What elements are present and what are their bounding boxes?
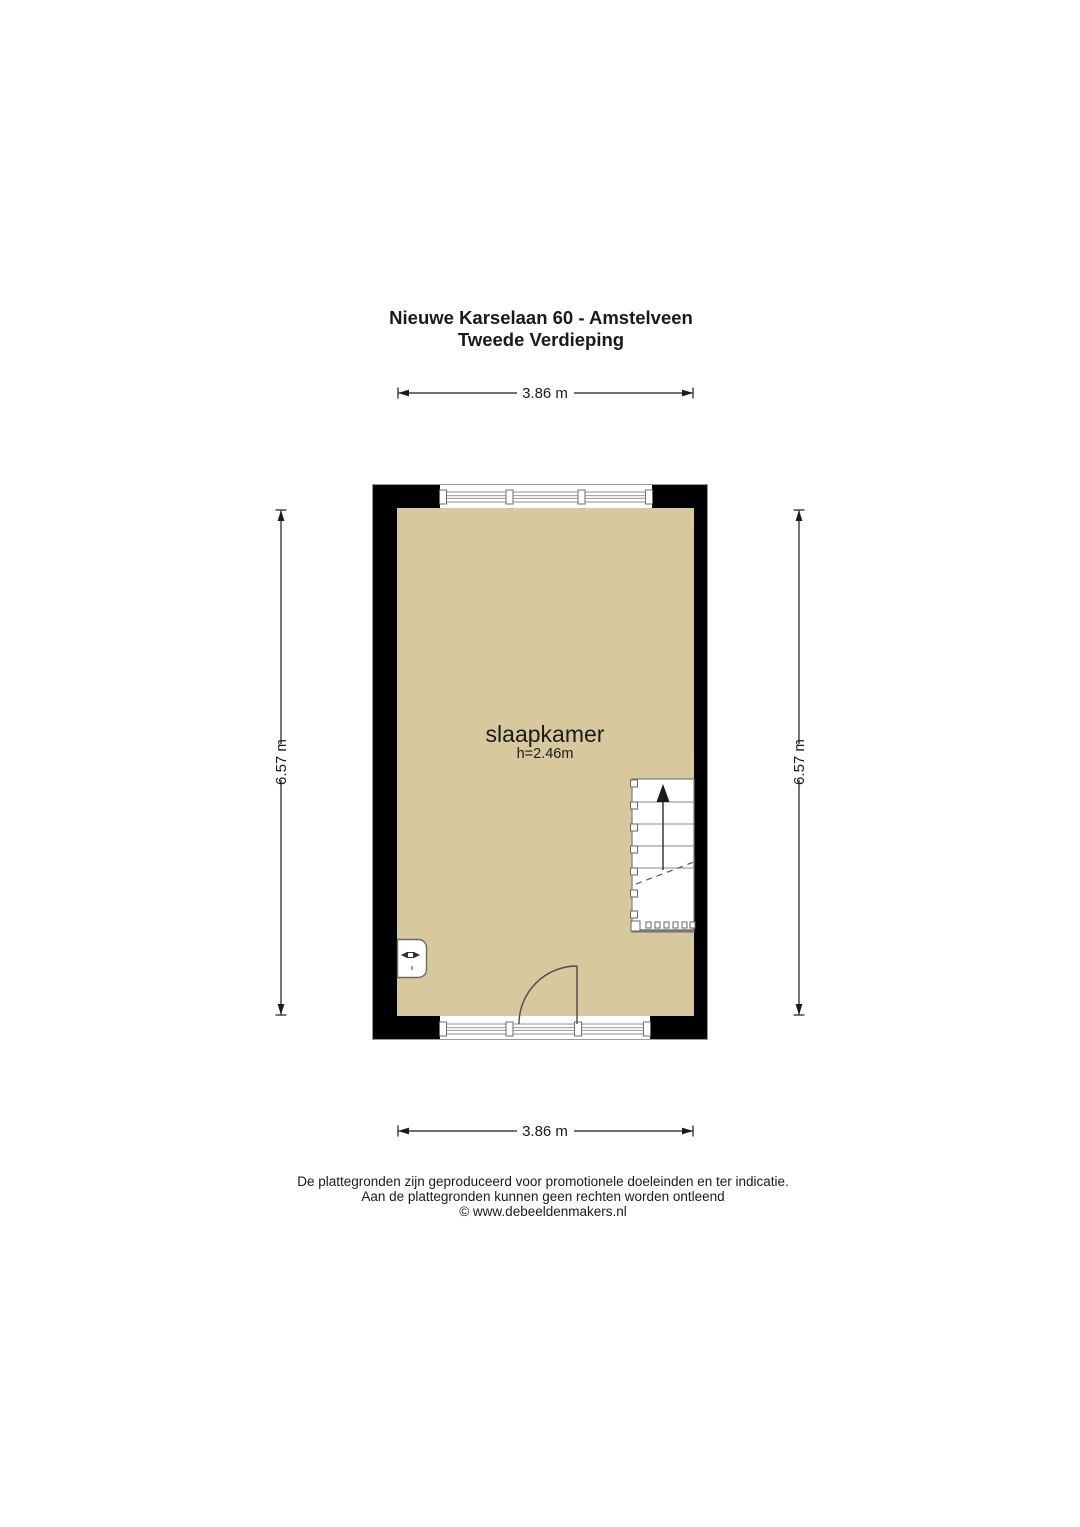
baluster bbox=[655, 922, 660, 928]
baluster bbox=[631, 780, 638, 787]
wall-bottom-left-block bbox=[373, 1016, 440, 1039]
baluster bbox=[646, 922, 651, 928]
arrowhead-right-icon bbox=[682, 390, 693, 397]
baluster bbox=[690, 922, 695, 928]
arrowhead-down-icon bbox=[796, 1004, 803, 1015]
dimension-label-bottom: 3.86 m bbox=[522, 1123, 568, 1140]
window-frame bbox=[440, 492, 652, 502]
title-line1: Nieuwe Karselaan 60 - Amstelveen bbox=[389, 307, 693, 328]
arrowhead-up-icon bbox=[796, 510, 803, 521]
baluster bbox=[631, 846, 638, 853]
window-mullion bbox=[646, 490, 653, 504]
window-mullion bbox=[440, 490, 447, 504]
baluster bbox=[631, 911, 638, 918]
wall-top-right-block bbox=[652, 485, 707, 508]
window-mullion bbox=[578, 490, 585, 504]
window-top bbox=[440, 490, 653, 504]
window-mullion bbox=[575, 1022, 582, 1036]
wall-bottom-right-block bbox=[650, 1016, 707, 1039]
window-frame bbox=[440, 1024, 650, 1034]
baluster bbox=[631, 802, 638, 809]
radiator bbox=[398, 940, 427, 978]
room-height-label: h=2.46m bbox=[517, 746, 574, 762]
floorplan-canvas: Nieuwe Karselaan 60 - Amstelveen Tweede … bbox=[0, 0, 1080, 1527]
window-mullion bbox=[644, 1022, 651, 1036]
wall-left bbox=[373, 485, 397, 1039]
dimension-label-top: 3.86 m bbox=[522, 385, 568, 402]
baluster bbox=[631, 824, 638, 831]
footer-line1: De plattegronden zijn geproduceerd voor … bbox=[297, 1174, 789, 1189]
arrowhead-right-icon bbox=[682, 1128, 693, 1135]
title-line2: Tweede Verdieping bbox=[458, 329, 624, 350]
wall-top-left-block bbox=[373, 485, 440, 508]
radiator-body bbox=[398, 940, 427, 978]
baluster bbox=[664, 922, 669, 928]
arrowhead-left-icon bbox=[398, 390, 409, 397]
valve-center bbox=[408, 953, 414, 958]
window-mullion bbox=[506, 1022, 513, 1036]
baluster bbox=[631, 890, 638, 897]
railing-post bbox=[631, 921, 640, 931]
footer-line2: Aan de plattegronden kunnen geen rechten… bbox=[361, 1189, 724, 1204]
arrowhead-up-icon bbox=[278, 510, 285, 521]
wall-right bbox=[694, 485, 707, 1039]
floorplan-page: Nieuwe Karselaan 60 - Amstelveen Tweede … bbox=[0, 0, 1080, 1527]
baluster bbox=[631, 868, 638, 875]
arrowhead-down-icon bbox=[278, 1004, 285, 1015]
stairs bbox=[631, 779, 696, 932]
window-mullion bbox=[440, 1022, 447, 1036]
baluster bbox=[673, 922, 678, 928]
room-floor bbox=[397, 508, 694, 1016]
dimension-label-right: 6.57 m bbox=[791, 739, 808, 785]
dimension-label-left: 6.57 m bbox=[273, 739, 290, 785]
baluster bbox=[682, 922, 687, 928]
footer-line3: © www.debeeldenmakers.nl bbox=[459, 1204, 627, 1219]
arrowhead-left-icon bbox=[398, 1128, 409, 1135]
window-bottom bbox=[440, 1022, 651, 1036]
window-mullion bbox=[506, 490, 513, 504]
room-name-label: slaapkamer bbox=[486, 721, 605, 747]
